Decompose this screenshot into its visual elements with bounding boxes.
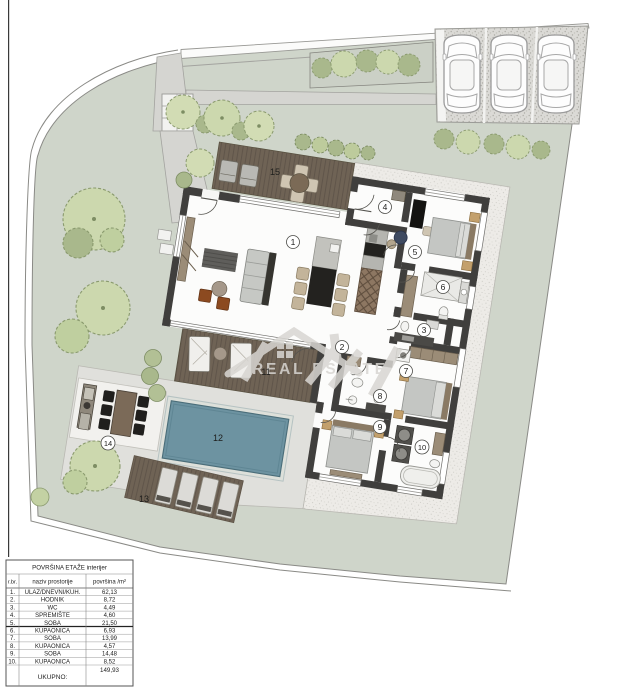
svg-text:4,57: 4,57 — [104, 644, 116, 650]
svg-text:10.: 10. — [8, 659, 17, 665]
svg-text:POVRŠINA ETAŽE interijer: POVRŠINA ETAŽE interijer — [32, 564, 107, 572]
svg-text:4,60: 4,60 — [104, 613, 116, 619]
svg-text:14,48: 14,48 — [102, 652, 118, 658]
svg-text:8,72: 8,72 — [104, 598, 116, 604]
svg-text:3: 3 — [422, 325, 427, 335]
svg-text:15: 15 — [270, 167, 280, 177]
svg-text:5: 5 — [413, 247, 418, 257]
svg-text:KUPAONICA: KUPAONICA — [35, 659, 70, 665]
svg-text:13,99: 13,99 — [102, 636, 118, 642]
svg-text:UKUPNO:: UKUPNO: — [38, 674, 68, 681]
svg-text:11: 11 — [261, 367, 270, 377]
svg-text:6.: 6. — [10, 629, 15, 635]
svg-text:HODNIK: HODNIK — [41, 598, 64, 604]
svg-text:6: 6 — [441, 282, 446, 292]
svg-text:SOBA: SOBA — [44, 621, 61, 627]
svg-text:149,93: 149,93 — [100, 667, 119, 674]
svg-text:1: 1 — [291, 237, 296, 247]
svg-text:ULAZ/DNEVNI/KUH.: ULAZ/DNEVNI/KUH. — [25, 590, 81, 596]
svg-text:3.: 3. — [10, 605, 15, 611]
svg-text:naziv prostorije: naziv prostorije — [32, 580, 73, 586]
svg-text:4: 4 — [383, 202, 388, 212]
svg-text:KUPAONICA: KUPAONICA — [35, 644, 70, 650]
svg-text:SOBA: SOBA — [44, 636, 61, 642]
svg-text:7: 7 — [404, 366, 409, 376]
svg-text:5.: 5. — [10, 621, 15, 627]
svg-text:2: 2 — [340, 342, 345, 352]
svg-text:10: 10 — [418, 443, 426, 452]
svg-text:SPREMIŠTE: SPREMIŠTE — [35, 612, 70, 619]
svg-text:8: 8 — [378, 391, 383, 401]
svg-text:2.: 2. — [10, 598, 15, 604]
svg-text:62,13: 62,13 — [102, 590, 118, 596]
svg-text:9.: 9. — [10, 652, 15, 658]
svg-text:7.: 7. — [10, 636, 15, 642]
svg-text:21,50: 21,50 — [102, 621, 118, 627]
svg-text:KUPAONICA: KUPAONICA — [35, 629, 70, 635]
svg-text:1.: 1. — [10, 590, 15, 596]
svg-text:4,49: 4,49 — [104, 605, 116, 611]
svg-text:13: 13 — [139, 494, 149, 504]
svg-text:9: 9 — [378, 422, 383, 432]
svg-text:r.br.: r.br. — [8, 580, 18, 586]
svg-text:8,52: 8,52 — [104, 659, 116, 665]
svg-text:14: 14 — [104, 439, 112, 448]
svg-text:8.: 8. — [10, 644, 15, 650]
svg-text:12: 12 — [213, 433, 223, 443]
svg-text:4.: 4. — [10, 613, 15, 619]
svg-text:WC: WC — [48, 605, 59, 611]
svg-text:REAL ESTATE: REAL ESTATE — [252, 361, 388, 378]
svg-text:SOBA: SOBA — [44, 652, 61, 658]
svg-text:površina /m²: površina /m² — [93, 580, 126, 586]
svg-text:6,93: 6,93 — [104, 629, 116, 635]
